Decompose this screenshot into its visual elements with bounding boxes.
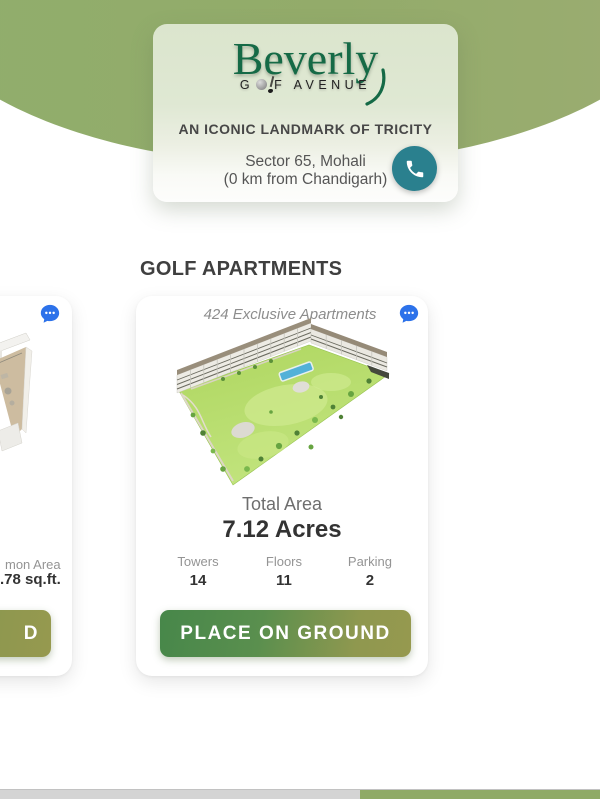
phone-button[interactable] (392, 146, 437, 191)
stat-label: Floors (262, 554, 306, 569)
stat-value: 11 (262, 572, 306, 589)
stats-row: Towers 14 Floors 11 Parking 2 (136, 554, 428, 589)
brand-name: Beverly (153, 34, 458, 84)
total-area-value: 7.12 Acres (136, 516, 428, 544)
brand-subtitle: GF AVENUE (153, 78, 458, 92)
card-title: 424 Exclusive Apartments (136, 306, 428, 323)
stat-value-fragment: .78 sq.ft. (0, 571, 61, 588)
section-heading: GOLF APARTMENTS (140, 258, 342, 281)
stat-label-fragment: mon Area (5, 557, 61, 572)
brand-subtitle-g: G (240, 78, 254, 92)
stat-label: Towers (176, 554, 220, 569)
chat-button[interactable] (38, 303, 62, 327)
place-on-ground-button[interactable]: PLACE ON GROUND (160, 610, 411, 657)
chat-bubble-icon (398, 303, 420, 325)
golf-club-icon (268, 78, 274, 91)
app-screen: Beverly GF AVENUE AN ICONIC LANDMARK OF … (0, 0, 600, 800)
phone-icon (404, 158, 426, 180)
logo-swoosh (365, 68, 387, 108)
site-plan-image (171, 327, 391, 487)
header-card: Beverly GF AVENUE AN ICONIC LANDMARK OF … (153, 24, 458, 202)
brand-logo: Beverly GF AVENUE (153, 34, 458, 92)
stat-floors: Floors 11 (262, 554, 306, 589)
stat-towers: Towers 14 (176, 554, 220, 589)
stat-value: 2 (348, 572, 392, 589)
brand-subtitle-rest: F AVENUE (274, 78, 371, 92)
carousel-scrollbar-thumb[interactable] (360, 790, 600, 799)
golf-ball-icon (256, 79, 267, 90)
chat-button[interactable] (397, 303, 421, 327)
total-area-label: Total Area (136, 494, 428, 515)
apartment-card[interactable]: 424 Exclusive Apartments (136, 296, 428, 676)
stat-label: Parking (348, 554, 392, 569)
stat-value: 14 (176, 572, 220, 589)
carousel-scrollbar-track[interactable] (0, 789, 600, 799)
project-tagline: AN ICONIC LANDMARK OF TRICITY (153, 121, 458, 137)
floorplan-image (0, 331, 38, 455)
previous-apartment-card[interactable]: mon Area .78 sq.ft. D (0, 296, 72, 676)
stat-parking: Parking 2 (348, 554, 392, 589)
place-on-ground-button[interactable]: D (0, 610, 51, 657)
chat-bubble-icon (39, 303, 61, 325)
